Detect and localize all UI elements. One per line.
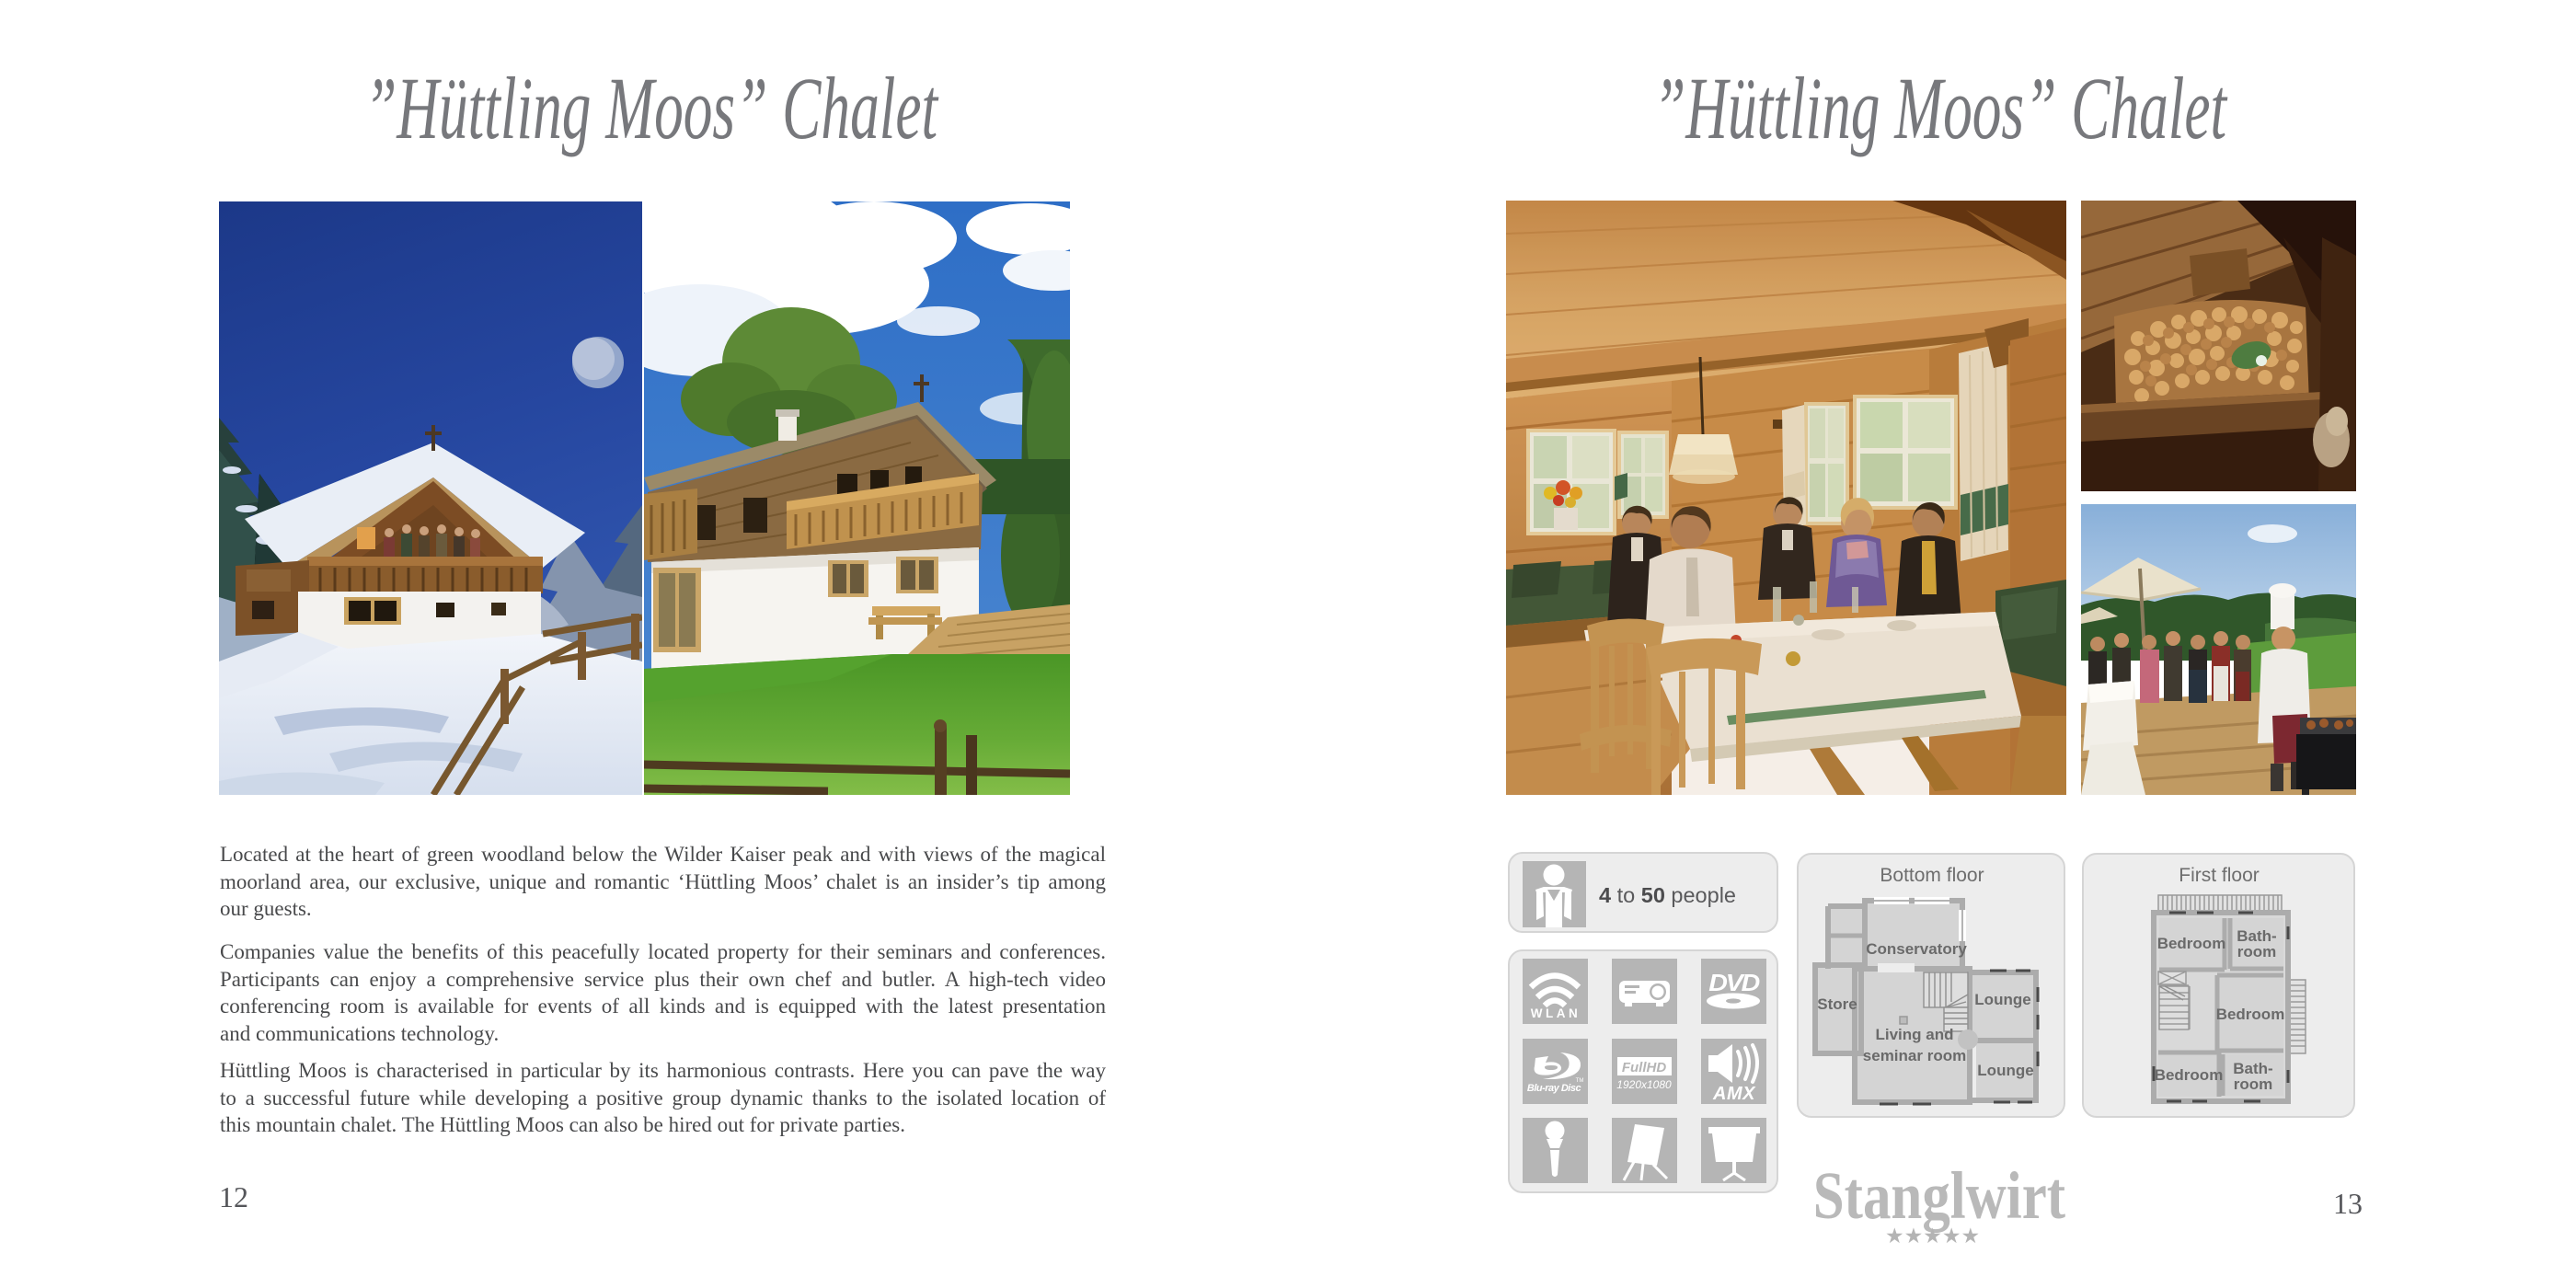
svg-text:Lounge: Lounge <box>1974 991 2030 1008</box>
svg-text:FullHD: FullHD <box>1622 1060 1666 1075</box>
svg-text:TM: TM <box>1576 1078 1584 1084</box>
svg-text:Lounge: Lounge <box>1977 1062 2033 1079</box>
svg-text:room: room <box>2237 943 2277 960</box>
svg-text:Bedroom: Bedroom <box>2216 1006 2285 1023</box>
svg-text:seminar room: seminar room <box>1863 1047 1966 1064</box>
svg-text:1920x1080: 1920x1080 <box>1616 1078 1672 1091</box>
svg-text:Store: Store <box>1817 995 1857 1013</box>
svg-text:WLAN: WLAN <box>1531 1006 1581 1020</box>
svg-text:AMX: AMX <box>1712 1084 1756 1104</box>
svg-text:DVD: DVD <box>1708 969 1759 995</box>
svg-text:Bedroom: Bedroom <box>2155 1066 2224 1084</box>
svg-text:Living and: Living and <box>1876 1026 1954 1043</box>
svg-text:Blu-ray Disc: Blu-ray Disc <box>1527 1083 1581 1094</box>
svg-text:room: room <box>2234 1075 2273 1093</box>
svg-text:Bedroom: Bedroom <box>2157 935 2226 952</box>
svg-text:Conservatory: Conservatory <box>1866 940 1967 958</box>
